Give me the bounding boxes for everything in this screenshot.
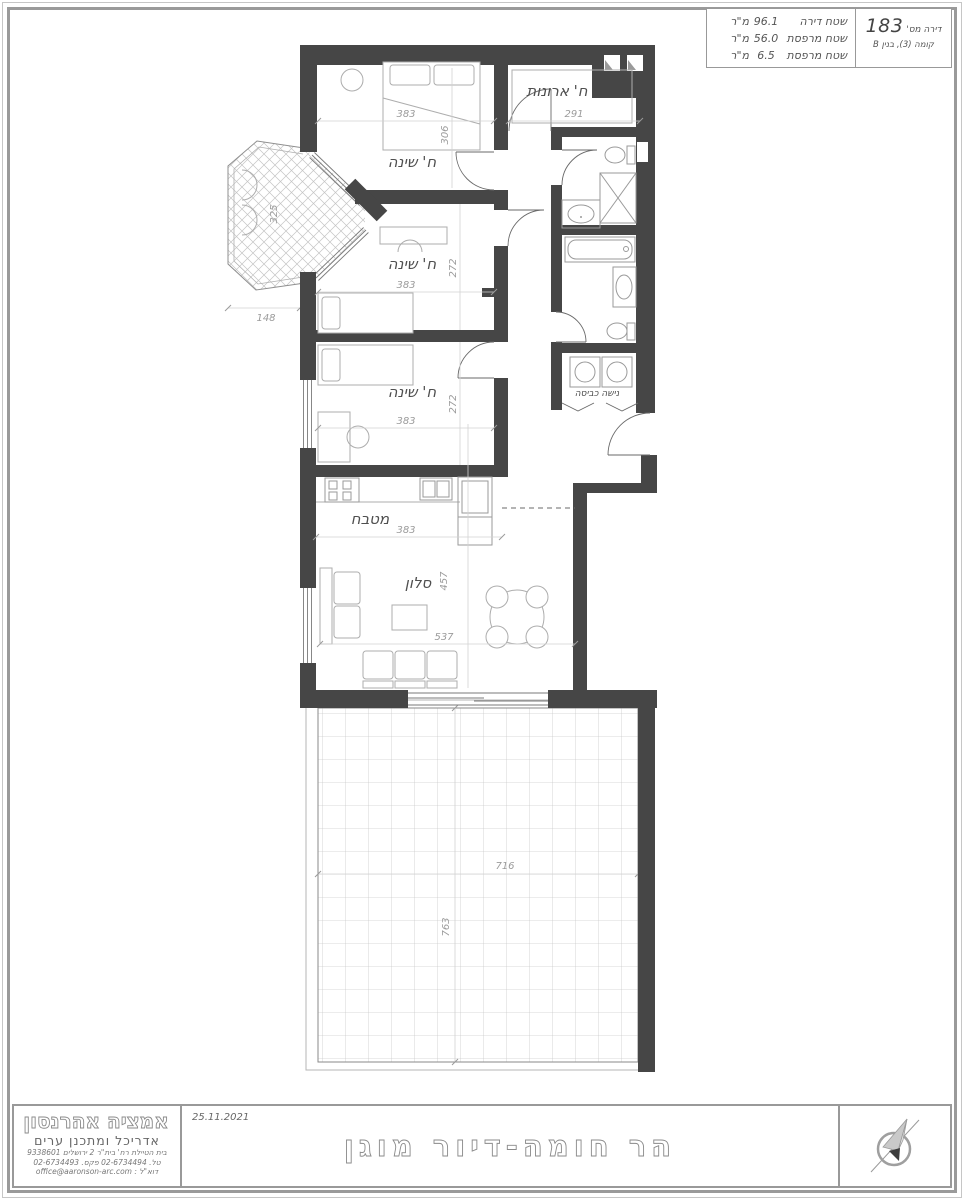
drawing-sheet: 716 763 325 148 — [0, 0, 964, 1200]
dim-bed3-depth: 272 — [448, 394, 459, 413]
drawing-date: 25.11.2021 — [192, 1112, 249, 1123]
laundry-machines — [570, 357, 632, 387]
area-row: שטח מרפסת 56.0 מ"ר — [713, 30, 847, 47]
dim-terrace-depth: 763 — [441, 917, 452, 936]
bedroom3-furniture — [318, 345, 413, 462]
architect-email: דוא"ל : office@aaronson-arc.com — [14, 1167, 180, 1177]
architect-block: אמציה אהרנסון אדריכל ומתכנן ערים בית הטי… — [14, 1106, 182, 1186]
area-label: שטח דירה — [783, 13, 847, 30]
dim-closet-width: 291 — [564, 109, 583, 120]
area-label: שטח מרפסת — [783, 47, 847, 64]
area-row: שטח דירה 96.1 מ"ר — [713, 13, 847, 30]
project-block: 25.11.2021 הר חומה-דיור מוגן — [182, 1106, 838, 1186]
area-value: 96.1 — [749, 13, 783, 30]
dim-bay-offset: 148 — [256, 313, 275, 324]
area-row: שטח מרפסת 6.5 מ"ר — [713, 47, 847, 64]
title-band: אמציה אהרנסון אדריכל ומתכנן ערים בית הטי… — [12, 1104, 952, 1188]
area-unit: מ"ר — [723, 13, 749, 30]
architect-name-text: אמציה אהרנסון — [23, 1109, 168, 1133]
apartment-number-line: דירה מס' 183 — [856, 15, 951, 37]
apartment-number-cell: דירה מס' 183 קומה (3), בנין B — [855, 9, 951, 67]
north-arrow-icon — [863, 1114, 927, 1178]
architect-name: אמציה אהרנסון — [14, 1109, 178, 1135]
apartment-label: דירה מס' — [906, 25, 941, 35]
dim-bed2-depth: 272 — [448, 258, 459, 277]
floor-building-line: קומה (3), בנין B — [856, 40, 951, 50]
bedroom1-furniture — [341, 62, 480, 150]
room-label-laundry: נישה כביסה — [575, 389, 620, 399]
area-label: שטח מרפסת — [783, 30, 847, 47]
dim-living-width: 537 — [434, 632, 454, 643]
dim-bed1-width: 383 — [396, 109, 415, 120]
compass-block — [838, 1106, 950, 1186]
apartment-number: 183 — [866, 15, 904, 37]
terrace: 716 763 — [306, 700, 641, 1070]
room-label-kitchen: מטבח — [351, 510, 390, 528]
area-value: 6.5 — [749, 47, 783, 64]
dim-bed1-depth: 306 — [440, 125, 451, 144]
dim-living-depth: 457 — [439, 571, 450, 591]
room-label-living: סלון — [405, 574, 433, 592]
project-title-text: הר חומה-דיור מוגן — [344, 1129, 676, 1163]
living-room-furniture — [320, 568, 548, 688]
room-label-bedroom1: ח' שינה — [388, 153, 437, 171]
architect-title: אדריכל ומתכנן ערים — [14, 1133, 180, 1148]
area-unit: מ"ר — [723, 47, 749, 64]
floor-plan: 716 763 325 148 — [0, 0, 964, 1200]
bathroom-fixtures — [562, 146, 636, 340]
architect-phone: טל. 02-6734494 פקס. 02-6734493 — [14, 1158, 180, 1168]
dim-kitchen-width: 383 — [396, 525, 415, 536]
room-label-closet: ח' ארונות — [526, 82, 587, 100]
area-value: 56.0 — [749, 30, 783, 47]
dim-terrace-width: 716 — [495, 861, 514, 872]
dim-bay-width: 325 — [269, 204, 280, 223]
dim-bed2-width: 383 — [396, 280, 415, 291]
dim-bed3-width: 383 — [396, 416, 415, 427]
apartment-info-box: דירה מס' 183 קומה (3), בנין B שטח דירה 9… — [706, 8, 952, 68]
project-title: הר חומה-דיור מוגן — [240, 1123, 780, 1169]
room-label-bedroom3: ח' שינה — [388, 383, 437, 401]
area-unit: מ"ר — [723, 30, 749, 47]
areas-cell: שטח דירה 96.1 מ"ר שטח מרפסת 56.0 מ"ר שטח… — [707, 9, 855, 67]
architect-address: בית הטיילת רח' בית"ר 2 ירושלים 9338601 — [14, 1148, 180, 1158]
room-label-bedroom2: ח' שינה — [388, 255, 437, 273]
